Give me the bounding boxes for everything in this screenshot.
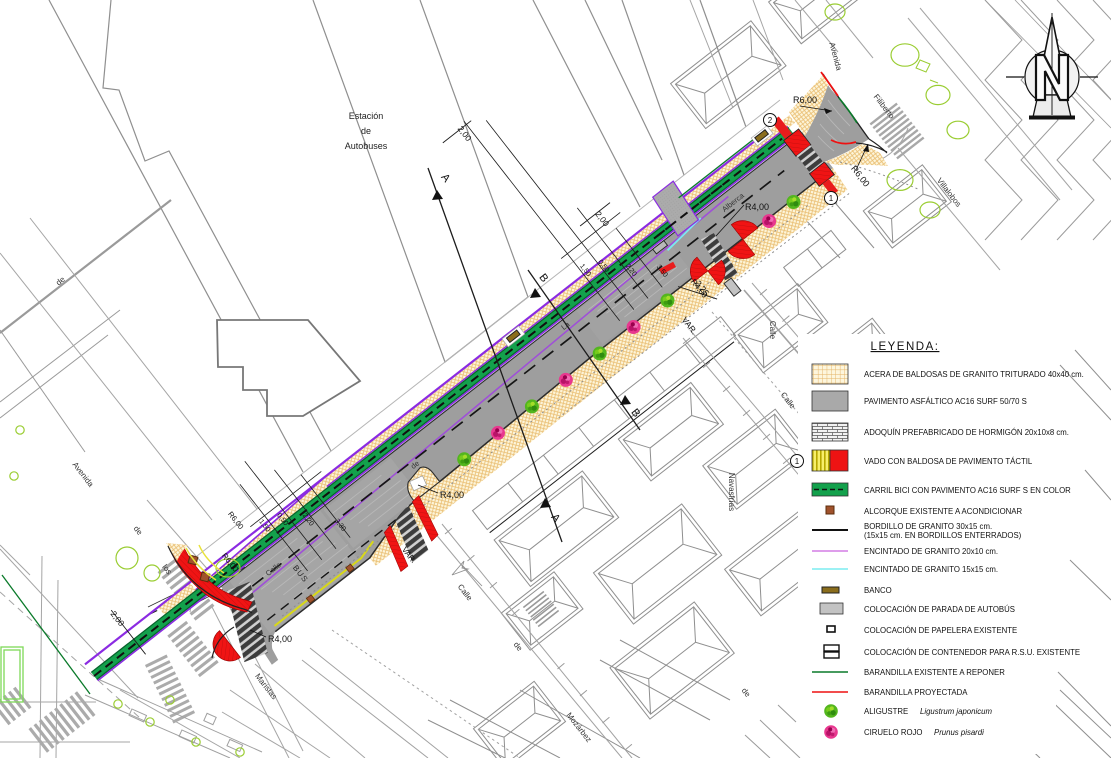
svg-text:Ligustrum japonicum: Ligustrum japonicum — [920, 707, 992, 716]
svg-text:de: de — [361, 126, 371, 136]
svg-text:Autobuses: Autobuses — [345, 141, 388, 151]
svg-text:BARANDILLA PROYECTADA: BARANDILLA PROYECTADA — [864, 688, 968, 697]
svg-text:Prunus pisardi: Prunus pisardi — [934, 728, 984, 737]
svg-text:COLOCACIÓN DE CONTENEDOR PARA: COLOCACIÓN DE CONTENEDOR PARA R.S.U. EXI… — [864, 648, 1080, 657]
svg-text:R4,00: R4,00 — [268, 634, 292, 644]
svg-text:Navasfrías: Navasfrías — [727, 473, 736, 511]
svg-text:COLOCACIÓN DE PAPELERA EXISTEN: COLOCACIÓN DE PAPELERA EXISTENTE — [864, 626, 1017, 635]
svg-text:1: 1 — [795, 457, 800, 466]
svg-text:R4,00: R4,00 — [745, 202, 769, 212]
svg-text:LEYENDA:: LEYENDA: — [871, 341, 940, 353]
svg-text:ENCINTADO DE GRANITO 20x10 cm.: ENCINTADO DE GRANITO 20x10 cm. — [864, 547, 998, 556]
svg-text:ALIGUSTRE: ALIGUSTRE — [864, 707, 908, 716]
svg-text:PAVIMENTO ASFÁLTICO AC16 SURF: PAVIMENTO ASFÁLTICO AC16 SURF 50/70 S — [864, 397, 1027, 406]
svg-text:BANCO: BANCO — [864, 586, 892, 595]
svg-text:CARRIL BICI CON PAVIMENTO AC16: CARRIL BICI CON PAVIMENTO AC16 SURF S EN… — [864, 486, 1071, 495]
svg-text:ACERA DE BALDOSAS DE GRANITO T: ACERA DE BALDOSAS DE GRANITO TRITURADO 4… — [864, 370, 1084, 379]
svg-text:CIRUELO ROJO: CIRUELO ROJO — [864, 728, 922, 737]
svg-text:Estación: Estación — [349, 111, 384, 121]
svg-text:R6,00: R6,00 — [793, 95, 817, 105]
svg-text:2: 2 — [768, 116, 773, 125]
svg-text:R4,00: R4,00 — [440, 490, 464, 500]
svg-text:(15x15 cm. EN BORDILLOS ENTERR: (15x15 cm. EN BORDILLOS ENTERRADOS) — [864, 531, 1022, 540]
svg-text:VADO CON BALDOSA DE PAVIMENTO: VADO CON BALDOSA DE PAVIMENTO TÁCTIL — [864, 457, 1033, 466]
svg-text:COLOCACIÓN DE PARADA DE AUTOBÚ: COLOCACIÓN DE PARADA DE AUTOBÚS — [864, 605, 1015, 614]
svg-text:ADOQUÍN PREFABRICADO DE HORMIG: ADOQUÍN PREFABRICADO DE HORMIGÓN 20x10x8… — [864, 428, 1069, 437]
svg-text:Calle: Calle — [768, 321, 777, 340]
svg-text:BORDILLO DE GRANITO 30x15 cm.: BORDILLO DE GRANITO 30x15 cm. — [864, 522, 992, 531]
svg-text:ALCORQUE EXISTENTE A ACONDICIO: ALCORQUE EXISTENTE A ACONDICIONAR — [864, 507, 1023, 516]
svg-text:ENCINTADO DE GRANITO 15x15 cm.: ENCINTADO DE GRANITO 15x15 cm. — [864, 565, 998, 574]
svg-text:1: 1 — [829, 194, 834, 203]
svg-text:BARANDILLA EXISTENTE A REPONER: BARANDILLA EXISTENTE A REPONER — [864, 668, 1005, 677]
